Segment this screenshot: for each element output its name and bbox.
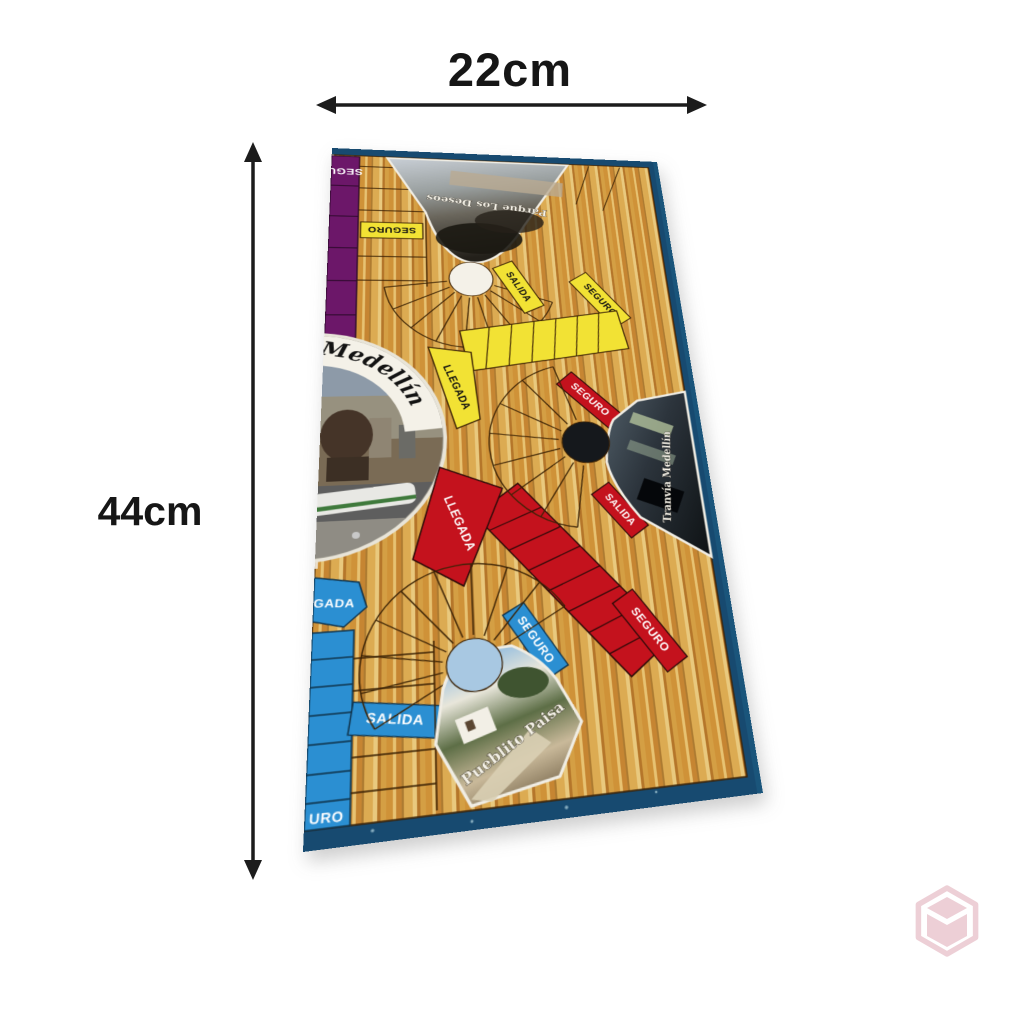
board-artwork: SEGU LLEG SEGURO Parque Los Deseos [303, 148, 763, 852]
product-photo: 22cm 44cm [0, 0, 1024, 1024]
board-shadow: SEGU LLEG SEGURO Parque Los Deseos [0, 0, 1024, 1024]
blue-llegada-label: GADA [313, 597, 356, 610]
yellow-seguro-top-label: SEGURO [367, 225, 416, 235]
yellow-seguro-top-cell: SEGURO [360, 222, 423, 239]
parques-board: SEGU LLEG SEGURO Parque Los Deseos [303, 148, 763, 852]
blue-salida-cell: SALIDA [348, 702, 441, 738]
purple-seguro-label: SEGU [327, 166, 363, 177]
tranvia-medellin-label: Tranvía Medellín [661, 431, 675, 524]
blue-seguro-bottom-label: URO [308, 809, 344, 828]
